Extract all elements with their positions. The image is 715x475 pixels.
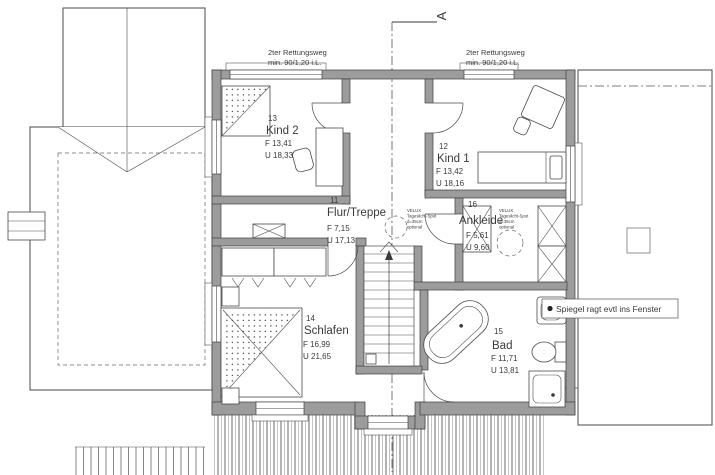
svg-text:F 16,99: F 16,99 — [303, 340, 331, 349]
floor-plan-drawing: A — [0, 0, 715, 475]
room-label-bad: 15 Bad F 11,71 U 13,81 — [491, 327, 520, 375]
room-label-kind1: 12 Kind 1 F 13,42 U 18,16 — [436, 142, 470, 188]
svg-text:F 11,71: F 11,71 — [491, 354, 518, 363]
svg-text:Spiegel ragt evtl ins Fenster: Spiegel ragt evtl ins Fenster — [556, 304, 662, 314]
toilet-icon — [532, 342, 566, 362]
svg-text:F 13,41: F 13,41 — [265, 139, 293, 148]
svg-text:F 13,42: F 13,42 — [436, 167, 464, 176]
closet-row — [222, 248, 326, 287]
roof-left — [30, 8, 212, 390]
roof-opening — [627, 228, 650, 253]
room-label-schlafen: 14 Schlafen F 16,99 U 21,65 — [303, 314, 349, 361]
door-bad — [424, 372, 454, 402]
bed-kind2-icon — [222, 86, 270, 136]
svg-text:Tageslicht-Spot: Tageslicht-Spot — [499, 214, 529, 219]
window-schlafen-left — [205, 283, 221, 345]
svg-text:U 17,13: U 17,13 — [327, 236, 356, 245]
svg-text:Kind 2: Kind 2 — [266, 125, 299, 137]
desk-kind2-icon — [316, 128, 343, 186]
floor-plan-canvas: A — [0, 0, 715, 475]
svg-text:F 5,61: F 5,61 — [466, 231, 489, 240]
duct-icon — [222, 388, 239, 404]
svg-text:Flur/Treppe: Flur/Treppe — [327, 207, 386, 219]
window-kind2-left — [205, 117, 221, 177]
svg-text:U 18,16: U 18,16 — [436, 179, 465, 188]
mirror-note-bullet — [547, 306, 552, 311]
window-schlafen-bottom — [252, 402, 308, 421]
chair-kind2-icon — [291, 147, 314, 173]
svg-text:13: 13 — [268, 114, 277, 123]
svg-text:Tageslicht-Spot: Tageslicht-Spot — [407, 214, 437, 219]
escape-route-label-right: 2ter Rettungsweg min. 90/1,20 i.L. — [466, 48, 525, 67]
nightstand-icon — [222, 287, 239, 306]
door-kind1 — [433, 103, 463, 133]
svg-text:Kind 1: Kind 1 — [437, 153, 470, 165]
svg-text:2ter Rettungsweg: 2ter Rettungsweg — [268, 48, 327, 57]
svg-text:d=35cm: d=35cm — [407, 219, 423, 224]
stairs — [364, 242, 414, 366]
svg-text:optional: optional — [407, 225, 422, 230]
bed-kind1-icon — [478, 152, 566, 183]
svg-text:16: 16 — [468, 200, 477, 209]
svg-text:12: 12 — [439, 142, 448, 151]
svg-text:15: 15 — [494, 327, 503, 336]
bathtub-icon — [417, 294, 496, 371]
room-label-flur: 11 Flur/Treppe F 7,15 U 17,13 — [327, 196, 386, 245]
shower-icon — [529, 371, 565, 407]
svg-text:VELUX: VELUX — [499, 208, 513, 213]
svg-text:U 13,81: U 13,81 — [491, 366, 520, 375]
roof-dashed-outline — [58, 153, 205, 365]
svg-text:F 7,15: F 7,15 — [327, 224, 350, 233]
svg-text:Schlafen: Schlafen — [304, 325, 349, 337]
wardrobe-flur-icon — [253, 224, 285, 238]
window-kind1-right — [566, 143, 582, 205]
wardrobe-ankleide-right-icon — [538, 206, 566, 282]
door-ankleide — [425, 214, 455, 244]
roof-bottom — [75, 415, 545, 475]
svg-text:Ankleide: Ankleide — [459, 215, 503, 227]
mirror-note: Spiegel ragt evtl ins Fenster — [542, 299, 678, 318]
velux-spot-flur: VELUX Tageslicht-Spot d=35cm optional — [385, 208, 437, 238]
svg-text:min. 90/1,20 i.L.: min. 90/1,20 i.L. — [268, 58, 321, 67]
svg-text:U 9,60: U 9,60 — [466, 243, 490, 252]
svg-text:VELUX: VELUX — [407, 208, 421, 213]
svg-text:min. 90/1,20 i.L.: min. 90/1,20 i.L. — [466, 58, 519, 67]
section-label-a: A — [434, 11, 449, 20]
svg-text:Bad: Bad — [492, 340, 512, 352]
svg-text:U 21,65: U 21,65 — [303, 352, 332, 361]
chimney — [8, 212, 45, 240]
wall-right — [566, 70, 575, 415]
window-bay-bottom — [364, 416, 412, 435]
escape-route-label-left: 2ter Rettungsweg min. 90/1,20 i.L. — [268, 48, 327, 67]
svg-text:2ter Rettungsweg: 2ter Rettungsweg — [466, 48, 525, 57]
roof-top-left — [63, 8, 205, 127]
svg-text:14: 14 — [306, 314, 315, 323]
roof-right — [552, 70, 712, 425]
bed-schlafen-icon — [221, 308, 302, 397]
door-schlafen — [328, 246, 358, 276]
svg-text:U 18,33: U 18,33 — [265, 151, 294, 160]
svg-text:11: 11 — [330, 196, 339, 205]
